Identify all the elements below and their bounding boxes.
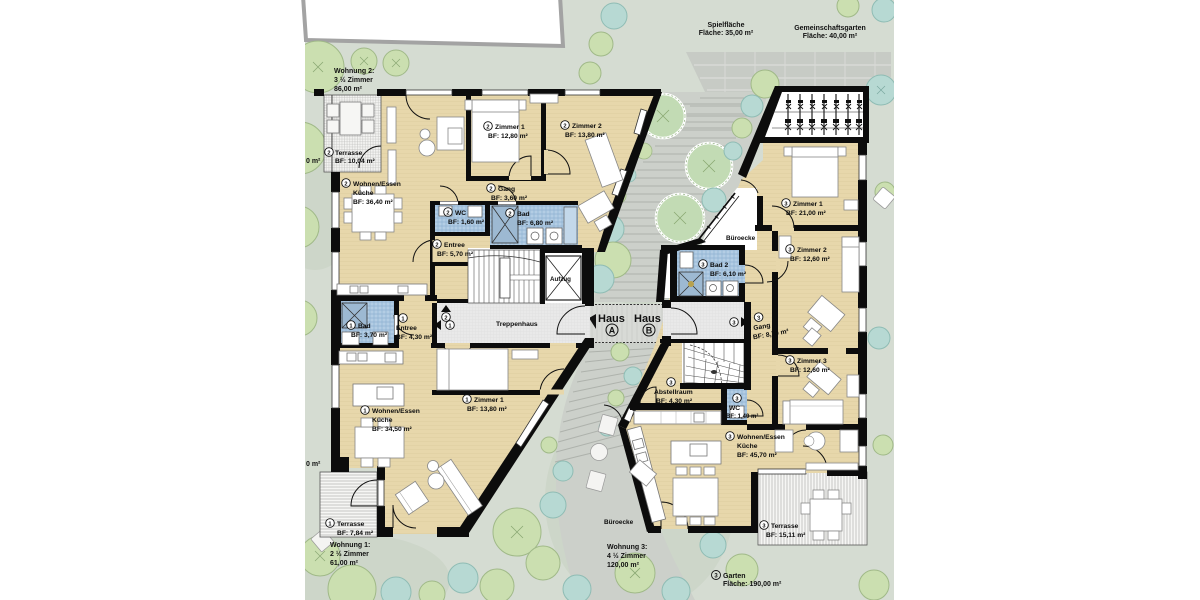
svg-text:86,00 m²: 86,00 m² <box>334 86 363 93</box>
svg-text:BF: 34,50 m²: BF: 34,50 m² <box>372 426 413 433</box>
svg-text:Gang: Gang <box>498 186 515 193</box>
svg-text:3: 3 <box>784 202 787 208</box>
svg-text:Haus: Haus <box>598 313 625 325</box>
svg-text:2: 2 <box>446 211 449 217</box>
svg-text:3: 3 <box>762 524 765 530</box>
svg-text:Garten: Garten <box>723 573 746 580</box>
svg-text:BF: 13,80 m²: BF: 13,80 m² <box>565 132 606 139</box>
svg-text:Zimmer 1: Zimmer 1 <box>495 124 525 131</box>
svg-text:1: 1 <box>349 324 352 330</box>
svg-text:Fläche: 35,00 m²: Fläche: 35,00 m² <box>699 30 754 37</box>
svg-text:2: 2 <box>327 151 330 157</box>
svg-text:Wohnung 2:: Wohnung 2: <box>334 68 374 75</box>
svg-text:1: 1 <box>465 398 468 404</box>
svg-text:Zimmer 1: Zimmer 1 <box>793 201 823 208</box>
svg-text:Zimmer 2: Zimmer 2 <box>572 123 602 130</box>
svg-text:Abstellraum: Abstellraum <box>654 389 693 396</box>
svg-text:3: 3 <box>788 248 791 254</box>
svg-text:Fläche: 190,00 m²: Fläche: 190,00 m² <box>723 581 782 588</box>
svg-text:BF: 10,04 m²: BF: 10,04 m² <box>335 158 376 165</box>
svg-text:Fläche: 40,00 m²: Fläche: 40,00 m² <box>803 33 858 40</box>
svg-text:BF: 12,60 m²: BF: 12,60 m² <box>790 367 831 374</box>
svg-text:Wohnen/Essen: Wohnen/Essen <box>353 181 401 188</box>
svg-text:B: B <box>646 326 653 336</box>
svg-text:1: 1 <box>401 317 404 323</box>
svg-text:2: 2 <box>444 316 447 322</box>
svg-text:Wohnen/Essen: Wohnen/Essen <box>372 408 420 415</box>
svg-text:BF: 36,40 m²: BF: 36,40 m² <box>353 199 394 206</box>
svg-text:BF: 3,60 m²: BF: 3,60 m² <box>491 195 528 202</box>
svg-text:Terrasse: Terrasse <box>771 523 799 530</box>
svg-text:Küche: Küche <box>353 190 374 197</box>
svg-text:Wohnen/Essen: Wohnen/Essen <box>737 434 785 441</box>
svg-text:BF: 21,00 m²: BF: 21,00 m² <box>786 210 827 217</box>
svg-text:61,00 m²: 61,00 m² <box>330 560 359 567</box>
svg-text:3: 3 <box>701 263 704 269</box>
svg-text:2 ½ Zimmer: 2 ½ Zimmer <box>330 550 369 558</box>
svg-text:WC: WC <box>455 210 466 217</box>
svg-text:Bad 2: Bad 2 <box>710 262 728 269</box>
svg-text:2: 2 <box>508 212 511 218</box>
svg-text:BF: 12,80 m²: BF: 12,80 m² <box>488 133 529 140</box>
svg-text:WC: WC <box>729 405 740 412</box>
svg-text:Zimmer 2: Zimmer 2 <box>797 247 827 254</box>
svg-text:2: 2 <box>486 125 489 131</box>
svg-text:Terrasse: Terrasse <box>337 521 365 528</box>
svg-text:BF: 6,10 m²: BF: 6,10 m² <box>710 271 747 278</box>
svg-text:Aufzug: Aufzug <box>550 276 571 283</box>
svg-text:BF: 4,30 m²: BF: 4,30 m² <box>396 334 433 341</box>
svg-text:2: 2 <box>563 124 566 130</box>
svg-text:BF: 45,70 m²: BF: 45,70 m² <box>737 452 778 459</box>
svg-text:Haus: Haus <box>634 313 661 325</box>
svg-text:BF: 1,40 m²: BF: 1,40 m² <box>726 413 758 420</box>
svg-text:Wohnung 1:: Wohnung 1: <box>330 542 370 549</box>
svg-text:A: A <box>609 326 616 336</box>
svg-text:2: 2 <box>344 182 347 188</box>
svg-text:3 ½ Zimmer: 3 ½ Zimmer <box>334 76 373 84</box>
svg-text:Spielfläche: Spielfläche <box>708 22 745 29</box>
svg-text:4 ½ Zimmer: 4 ½ Zimmer <box>607 552 646 560</box>
svg-text:Bad: Bad <box>358 323 371 330</box>
svg-text:3: 3 <box>788 359 791 365</box>
svg-text:0 m²: 0 m² <box>306 461 321 468</box>
svg-text:2: 2 <box>489 187 492 193</box>
svg-text:Gemeinschaftsgarten: Gemeinschaftsgarten <box>794 25 866 32</box>
svg-text:3: 3 <box>669 381 672 387</box>
svg-text:BF: 15,11 m²: BF: 15,11 m² <box>766 532 806 539</box>
svg-text:0 m²: 0 m² <box>306 158 321 165</box>
svg-text:Büroecke: Büroecke <box>726 235 756 242</box>
svg-text:BF: 6,80 m²: BF: 6,80 m² <box>517 220 554 227</box>
svg-text:1: 1 <box>328 522 331 528</box>
svg-text:BF: 13,80 m²: BF: 13,80 m² <box>467 406 508 413</box>
svg-text:3: 3 <box>735 397 738 403</box>
svg-text:3: 3 <box>728 435 731 441</box>
svg-text:Bad: Bad <box>517 211 530 218</box>
svg-text:3: 3 <box>732 321 735 327</box>
svg-text:Treppenhaus: Treppenhaus <box>496 321 538 328</box>
svg-text:BF: 4,30 m²: BF: 4,30 m² <box>656 398 693 405</box>
svg-text:1: 1 <box>448 324 451 330</box>
svg-text:Wohnung 3:: Wohnung 3: <box>607 544 647 551</box>
svg-text:Zimmer 1: Zimmer 1 <box>474 397 504 404</box>
svg-text:BF: 1,60 m²: BF: 1,60 m² <box>448 219 485 226</box>
svg-text:Entree: Entree <box>444 242 465 249</box>
svg-text:2: 2 <box>435 243 438 249</box>
svg-text:Küche: Küche <box>737 443 758 450</box>
svg-text:Entree: Entree <box>396 325 417 332</box>
svg-text:Küche: Küche <box>372 417 393 424</box>
svg-text:Terrasse: Terrasse <box>335 150 363 157</box>
svg-text:120,00 m²: 120,00 m² <box>607 562 640 569</box>
svg-text:BF: 5,70 m²: BF: 5,70 m² <box>437 251 474 258</box>
svg-text:1: 1 <box>363 409 366 415</box>
svg-text:Büroecke: Büroecke <box>604 519 634 526</box>
svg-text:BF: 12,60 m²: BF: 12,60 m² <box>790 256 831 263</box>
svg-text:Zimmer 3: Zimmer 3 <box>797 358 827 365</box>
svg-text:BF: 3,70 m²: BF: 3,70 m² <box>351 332 388 339</box>
svg-text:BF: 7,84 m²: BF: 7,84 m² <box>337 530 374 537</box>
